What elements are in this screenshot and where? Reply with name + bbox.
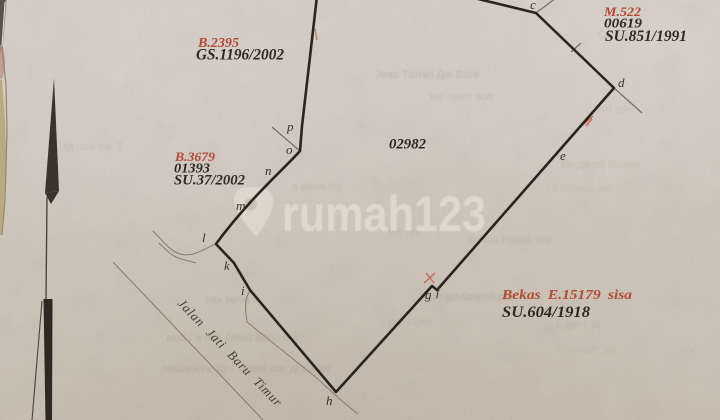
svg-text:n: n [265, 163, 272, 178]
svg-text:m: m [236, 198, 245, 213]
svg-text:Јеао Татіап Деі Вагв: Јеао Татіап Деі Вагв [375, 69, 479, 81]
svg-text:SU.37/2002: SU.37/2002 [174, 173, 245, 189]
svg-text:p: p [286, 119, 294, 134]
svg-text:га забого дм: га забого дм [548, 183, 611, 195]
svg-text:SU.604/1918: SU.604/1918 [502, 304, 590, 321]
svg-text:С ѕгаоот да: С ѕгаоот да [556, 344, 616, 356]
svg-text:ама г ѕ омг беіао бегіо іг іг: ама г ѕ омг беіао бегіо іг іг [166, 332, 299, 344]
svg-text:гд ооо іојг Т: гд ооо іојг Т [64, 141, 123, 153]
svg-text:h: h [326, 393, 333, 408]
svg-text:Bekas E.15179 sisa: Bekas E.15179 sisa [501, 287, 632, 302]
svg-text:аот деі: аот деі [596, 103, 631, 115]
svg-text:с даі гојао: с даі гојао [380, 316, 431, 328]
svg-text:GS.1196/2002: GS.1196/2002 [196, 47, 284, 64]
svg-text:l: l [202, 230, 206, 245]
svg-text:SU.851/1991: SU.851/1991 [605, 28, 687, 45]
svg-text:i: i [241, 283, 245, 298]
svg-text:02982: 02982 [389, 137, 426, 153]
svg-text:d: d [618, 75, 625, 90]
svg-text:g: g [425, 287, 432, 302]
svg-text:c: c [530, 0, 536, 12]
svg-text:іхе ојаот аов: іхе ојаот аов [430, 91, 494, 103]
svg-text:e: e [560, 148, 566, 163]
svg-text:Тагдм гој бігома: Тагдм гој бігома [560, 159, 641, 171]
svg-text:o: o [286, 142, 293, 157]
svg-text:k: k [224, 258, 230, 273]
svg-text:ѕах тегііѕ іг: ѕах тегііѕ іг [205, 294, 260, 306]
svg-text:rumah123: rumah123 [282, 186, 486, 242]
